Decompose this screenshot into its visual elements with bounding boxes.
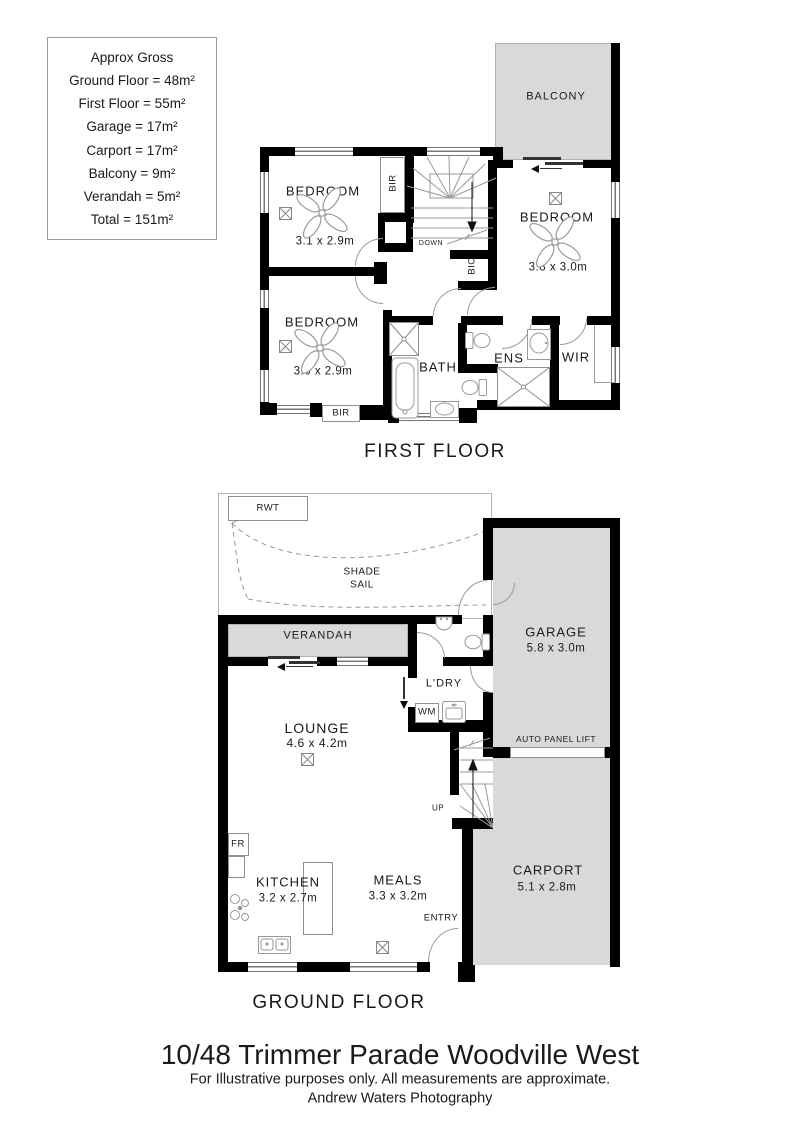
shower-icon (497, 367, 550, 407)
entry-label: ENTRY (424, 914, 459, 925)
ground-floor-title: GROUND FLOOR (252, 992, 425, 1014)
wall-segment (483, 518, 493, 580)
property-address: 10/48 Trimmer Parade Woodville West (161, 1039, 639, 1071)
stairs-up-label: UP (432, 803, 444, 812)
cooktop-icon (228, 892, 251, 923)
wall-segment (412, 657, 417, 666)
light-point-icon (549, 192, 562, 205)
wall-segment (417, 962, 430, 972)
door-swing-arc (433, 288, 461, 316)
wall-segment (408, 615, 417, 678)
toilet-icon (464, 632, 491, 652)
arrow-down-icon (400, 701, 408, 709)
wall-segment (218, 615, 228, 972)
wall-segment (493, 747, 510, 758)
first-floor-title: FIRST FLOOR (364, 441, 506, 463)
window-symbol (611, 347, 620, 383)
carport-label: CARPORT (513, 864, 583, 879)
bic-label: BIC (468, 257, 479, 274)
window-symbol (350, 962, 417, 972)
wall-segment (611, 43, 620, 168)
window-symbol (337, 657, 368, 666)
area-summary-title: Approx Gross (91, 50, 174, 65)
wall-segment (310, 403, 322, 417)
toilet-icon (461, 377, 488, 398)
wall-segment (260, 403, 277, 415)
area-summary-line: Carport = 17m² (86, 143, 177, 158)
door-swing-arc (355, 276, 383, 304)
wall-segment (583, 160, 620, 168)
fridge-label: FR (231, 840, 245, 851)
ens-label: ENS (494, 352, 524, 367)
window-symbol (260, 290, 269, 308)
kitchen-label: KITCHEN (256, 876, 320, 891)
wall-segment (462, 828, 473, 967)
area-summary-box: Approx Gross Ground Floor = 48m² First F… (47, 37, 217, 240)
carport-area (473, 828, 610, 965)
wall-segment (218, 615, 462, 624)
ceiling-fan-icon (294, 185, 350, 241)
wir-shelf-line (594, 382, 616, 383)
bir-bottom-label: BIR (332, 409, 349, 420)
garage-dims: 5.8 x 3.0m (527, 642, 586, 655)
ceiling-fan-icon (292, 320, 348, 376)
wall-segment (297, 962, 350, 972)
laundry-trough-icon (442, 701, 466, 723)
photography-credit: Andrew Waters Photography (308, 1091, 493, 1108)
wall-segment (260, 308, 269, 370)
shower-icon (389, 322, 419, 356)
ceiling-fan-icon (527, 214, 583, 270)
door-swing-arc (417, 632, 445, 658)
light-point-icon (301, 753, 314, 766)
door-swing-arc (428, 928, 458, 962)
wir-label: WIR (562, 351, 590, 366)
wir-shelf-line (594, 325, 595, 382)
wall-segment (220, 657, 268, 666)
wall-segment (459, 408, 477, 423)
light-point-icon (279, 207, 292, 220)
kitchen-sink-icon (258, 936, 291, 954)
area-summary-line: Garage = 17m² (86, 119, 177, 134)
wall-segment (220, 962, 248, 972)
arrow-left-icon (531, 165, 539, 173)
wall-segment (610, 757, 620, 967)
wm-label: WM (418, 708, 436, 719)
wall-segment (550, 316, 559, 409)
area-summary-line: Total = 151m² (91, 212, 173, 227)
basin-icon (435, 616, 453, 632)
area-summary-line: Balcony = 9m² (89, 166, 176, 181)
bath-label: BATH (419, 361, 457, 376)
arrow-tail (286, 666, 313, 667)
wall-segment (611, 168, 620, 182)
window-symbol (295, 147, 353, 156)
arrow-left-icon (277, 663, 285, 671)
carport-area (493, 758, 610, 828)
meals-dims: 3.3 x 3.2m (369, 890, 428, 903)
vanity-basin-icon (527, 329, 551, 360)
arrow-tail (540, 168, 562, 169)
wall-segment (317, 657, 337, 666)
pantry-box (228, 856, 245, 878)
area-summary-line: First Floor = 55m² (79, 96, 186, 111)
wall-segment (587, 316, 613, 325)
door-swing-arc (560, 318, 587, 345)
window-symbol (611, 182, 620, 218)
window-symbol (260, 370, 269, 402)
shade-sail-label-2: SAIL (350, 579, 374, 591)
cupboard-nook (385, 222, 406, 243)
lounge-dims: 4.6 x 4.2m (286, 737, 347, 751)
window-symbol (248, 962, 297, 972)
verandah-label: VERANDAH (283, 630, 352, 643)
wall-segment (260, 213, 269, 290)
balcony-label: BALCONY (526, 91, 586, 104)
sliding-door-symbol (289, 661, 320, 664)
sliding-door-symbol (545, 162, 583, 165)
light-point-icon (376, 941, 389, 954)
wall-segment (260, 147, 269, 172)
wall-segment (260, 267, 382, 276)
window-symbol (260, 172, 269, 213)
panel-lift-door (510, 747, 605, 758)
sliding-door-symbol (523, 157, 561, 160)
bir-top-label: BIR (389, 174, 400, 191)
bathtub-icon (391, 357, 419, 419)
cavity-slider-symbol (403, 677, 405, 699)
wall-segment (610, 518, 620, 757)
lounge-label: LOUNGE (284, 720, 349, 736)
floor-plan-page: Approx Gross Ground Floor = 48m² First F… (0, 0, 800, 1131)
sink-icon (430, 401, 459, 418)
door-swing-arc (467, 287, 495, 315)
light-point-icon (279, 340, 292, 353)
carport-dims: 5.1 x 2.8m (518, 881, 577, 894)
disclaimer-text: For Illustrative purposes only. All meas… (190, 1072, 610, 1089)
door-swing-arc (470, 666, 493, 693)
sliding-door-symbol (268, 656, 300, 659)
area-summary-line: Ground Floor = 48m² (69, 73, 195, 88)
toilet-icon (464, 330, 491, 351)
door-swing-arc (355, 238, 383, 266)
window-symbol (427, 147, 480, 156)
wall-segment (458, 364, 498, 373)
staircase-up (452, 728, 493, 828)
window-symbol (277, 405, 310, 414)
wall-segment (413, 147, 427, 156)
shade-sail-label-1: SHADE (344, 566, 381, 578)
laundry-label: L'DRY (426, 678, 462, 691)
auto-panel-lift-label: AUTO PANEL LIFT (516, 735, 596, 745)
wall-segment (611, 218, 620, 347)
meals-label: MEALS (373, 874, 422, 889)
wall-segment (353, 147, 413, 156)
garage-label: GARAGE (525, 626, 587, 641)
stairs-down-label: DOWN (419, 240, 443, 248)
wall-segment (483, 518, 620, 528)
rwt-label: RWT (257, 504, 280, 515)
area-summary-line: Verandah = 5m² (84, 189, 180, 204)
kitchen-dims: 3.2 x 2.7m (259, 892, 318, 905)
